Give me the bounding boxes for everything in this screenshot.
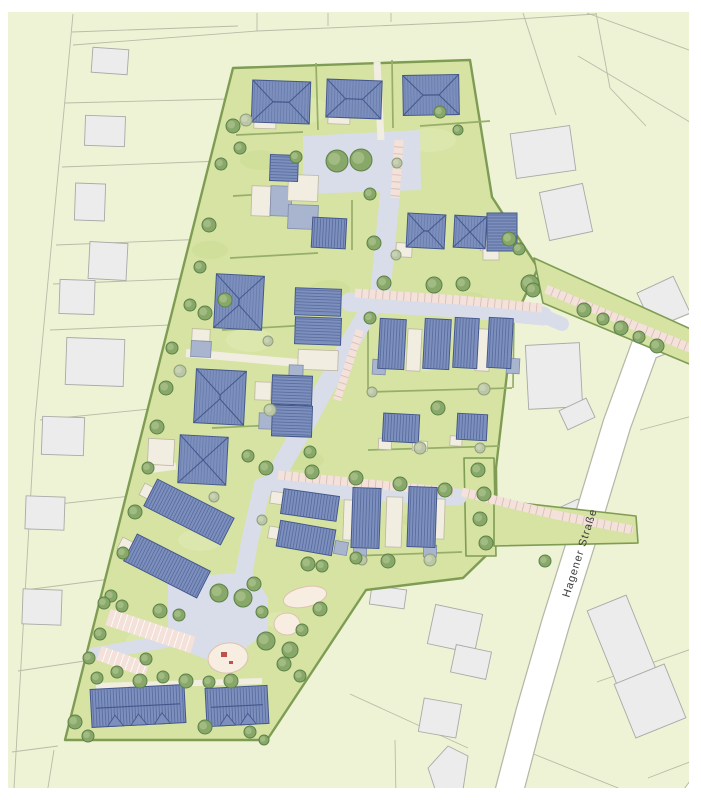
tree-icon (539, 555, 551, 567)
house-roof (295, 288, 342, 317)
shrub-icon (478, 383, 490, 395)
building-annex (251, 186, 271, 217)
tree-icon (210, 584, 228, 602)
tree-icon (471, 463, 485, 477)
existing-building (525, 343, 582, 410)
house-roof (311, 217, 347, 249)
shrub-icon (392, 158, 402, 168)
shrub-icon (240, 114, 252, 126)
existing-building (74, 183, 105, 221)
tree-icon (234, 142, 246, 154)
tree-icon (203, 676, 215, 688)
garage-roof (191, 340, 212, 357)
play-equipment (221, 652, 227, 657)
house-roof (295, 317, 342, 346)
building-annex (255, 382, 272, 401)
tree-icon (301, 557, 315, 571)
shrub-icon (257, 515, 267, 525)
tree-icon (316, 560, 328, 572)
tree-icon (194, 261, 206, 273)
stall-divider (697, 347, 700, 355)
tree-icon (364, 312, 376, 324)
building-annex (298, 349, 339, 370)
tree-icon (173, 609, 185, 621)
hip-roof-house (194, 369, 247, 426)
tree-icon (313, 602, 327, 616)
tree-icon (247, 577, 261, 591)
tree-icon (349, 471, 363, 485)
building-annex (406, 329, 422, 372)
existing-building (88, 242, 128, 281)
tree-icon (350, 552, 362, 564)
tree-icon (215, 158, 227, 170)
house-roof (271, 405, 312, 437)
tree-icon (326, 150, 348, 172)
existing-building (418, 698, 461, 738)
existing-building (84, 115, 125, 146)
tree-icon (82, 730, 94, 742)
play-equipment (229, 661, 233, 664)
tree-icon (367, 236, 381, 250)
shrub-icon (414, 442, 426, 454)
tree-icon (277, 657, 291, 671)
apartment-building (205, 685, 269, 726)
hip-roof-house (326, 79, 382, 119)
house-roof (487, 317, 514, 368)
tree-icon (68, 715, 82, 729)
tree-icon (305, 465, 319, 479)
tree-icon (111, 666, 123, 678)
building-annex (385, 497, 403, 548)
shrub-icon (264, 404, 276, 416)
tree-icon (456, 277, 470, 291)
tree-icon (477, 487, 491, 501)
shrub-icon (367, 387, 377, 397)
tree-icon (364, 188, 376, 200)
tree-icon (91, 672, 103, 684)
tree-icon (202, 218, 216, 232)
site-plan-page: Hagener Straße (0, 0, 701, 800)
hip-roof-house (403, 75, 460, 116)
hip-roof-house (178, 435, 228, 485)
tree-icon (597, 313, 609, 325)
shrub-icon (424, 554, 436, 566)
tree-icon (633, 331, 645, 343)
house-roof (423, 318, 452, 369)
tree-icon (650, 339, 664, 353)
tree-icon (296, 624, 308, 636)
tree-icon (257, 632, 275, 650)
existing-building (22, 589, 62, 625)
shrub-icon (391, 250, 401, 260)
house-roof (351, 488, 381, 549)
shrub-icon (263, 336, 273, 346)
tree-icon (453, 125, 463, 135)
tree-icon (184, 299, 196, 311)
tree-icon (150, 420, 164, 434)
tree-icon (577, 303, 591, 317)
tree-icon (140, 653, 152, 665)
shrub-icon (209, 492, 219, 502)
tree-icon (304, 446, 316, 458)
tree-icon (479, 536, 493, 550)
tree-icon (434, 106, 446, 118)
house-roof (407, 487, 437, 548)
house-roof (382, 413, 419, 443)
tree-icon (502, 232, 516, 246)
tree-icon (218, 293, 232, 307)
hip-roof-house (453, 215, 487, 249)
existing-building (41, 416, 84, 455)
tree-icon (179, 674, 193, 688)
tree-icon (393, 477, 407, 491)
tree-icon (224, 674, 238, 688)
garage-roof (333, 540, 348, 555)
existing-building (91, 47, 129, 74)
tree-icon (157, 671, 169, 683)
tree-icon (473, 512, 487, 526)
building-annex (192, 329, 211, 342)
tree-icon (98, 597, 110, 609)
tree-icon (381, 554, 395, 568)
house-roof (453, 317, 480, 368)
existing-building (539, 183, 592, 240)
tree-icon (128, 505, 142, 519)
existing-building (510, 126, 576, 179)
tree-icon (159, 381, 173, 395)
tree-icon (431, 401, 445, 415)
tree-icon (350, 149, 372, 171)
tree-icon (166, 342, 178, 354)
apartment-building (90, 685, 186, 728)
site-plan-map: Hagener Straße (0, 0, 701, 800)
tree-icon (244, 726, 256, 738)
tree-icon (526, 283, 540, 297)
mottle-patch (192, 241, 228, 259)
house-roof (378, 318, 407, 369)
existing-building (65, 338, 125, 387)
tree-icon (438, 483, 452, 497)
road-segment (543, 316, 562, 324)
tree-icon (282, 642, 298, 658)
tree-icon (513, 243, 525, 255)
hip-roof-house (251, 80, 310, 124)
tree-icon (116, 600, 128, 612)
stall-divider (690, 345, 693, 353)
tree-icon (259, 735, 269, 745)
tree-icon (226, 119, 240, 133)
tree-icon (290, 151, 302, 163)
tree-icon (142, 462, 154, 474)
tree-icon (83, 652, 95, 664)
tree-icon (117, 547, 129, 559)
tree-icon (426, 277, 442, 293)
shrub-icon (475, 443, 485, 453)
hedge-line (392, 60, 393, 128)
tree-icon (242, 450, 254, 462)
shrub-icon (174, 365, 186, 377)
tree-icon (198, 306, 212, 320)
tree-icon (153, 604, 167, 618)
tree-icon (234, 589, 252, 607)
tree-icon (377, 276, 391, 290)
tree-icon (198, 720, 212, 734)
tree-icon (133, 674, 147, 688)
tree-icon (94, 628, 106, 640)
building-annex (147, 438, 174, 465)
tree-icon (256, 606, 268, 618)
tree-icon (614, 321, 628, 335)
existing-building (25, 496, 65, 530)
tree-icon (259, 461, 273, 475)
house-roof (456, 413, 487, 441)
house-roof (272, 375, 313, 405)
existing-building (59, 279, 95, 314)
tree-icon (294, 670, 306, 682)
hip-roof-house (406, 213, 446, 249)
